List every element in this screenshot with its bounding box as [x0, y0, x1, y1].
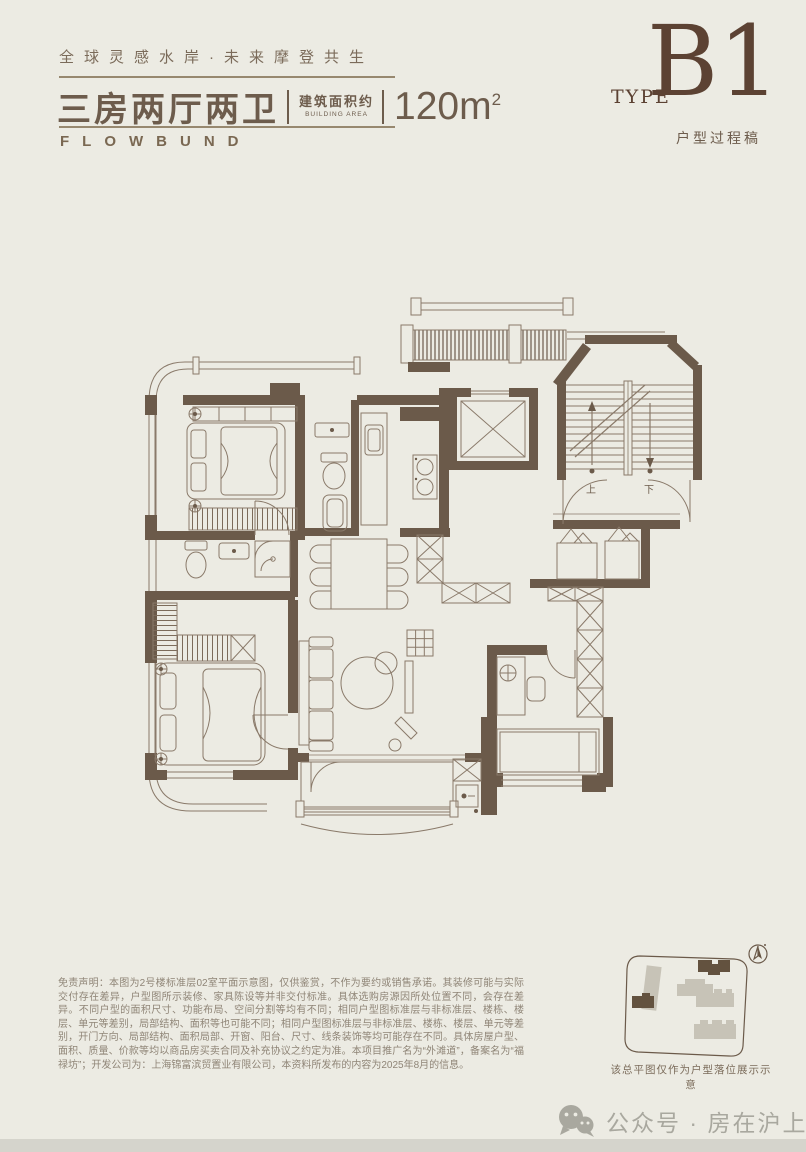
header-rule-top: [59, 76, 395, 78]
tv-console-icon: [405, 661, 413, 713]
bed-icon: [497, 729, 599, 775]
elevator-icon: [461, 391, 525, 457]
stair-down-label: 下: [644, 485, 654, 496]
tv-icon: [395, 717, 417, 739]
bed-icon: [187, 423, 285, 499]
louver-strip: [401, 298, 665, 363]
foyer-cabinets: [557, 527, 639, 579]
stool-icon: [389, 739, 401, 751]
area-value: 120m2: [394, 85, 501, 129]
study-room: [497, 650, 599, 786]
type-note: 户型过程稿: [676, 128, 761, 148]
entry-doors: [553, 480, 690, 524]
rug-icon: [341, 657, 393, 709]
toilet-icon: [185, 541, 207, 578]
divider: [287, 90, 289, 124]
grid-table-icon: [407, 630, 433, 656]
toilet-icon: [321, 453, 347, 489]
bedroom-master: [149, 603, 288, 778]
watermark: 公众号 · 房在沪上: [556, 1104, 806, 1138]
shower-icon: [255, 541, 290, 577]
window-lines: [501, 780, 582, 786]
desk-chair-icon: [527, 677, 545, 701]
stove-icon: [413, 455, 437, 499]
tagline: 全球灵感水岸·未来摩登共生: [59, 46, 374, 67]
bathroom-middle: [185, 541, 290, 578]
site-map: [610, 936, 780, 1066]
wardrobe-hatch: [231, 535, 603, 781]
kitchen: [361, 413, 437, 525]
wechat-icon: [556, 1104, 598, 1138]
brand-logo: FLOWBUND: [60, 133, 251, 150]
wardrobe-hatch: [189, 508, 297, 530]
bathroom-top: [315, 423, 349, 531]
living-room: [299, 630, 465, 792]
site-building: [641, 965, 736, 1039]
door-arc: [311, 762, 341, 792]
poster-page: 全球灵感水岸·未来摩登共生 三房两厅两卫 建筑面积约 BUILDING AREA…: [0, 0, 806, 1152]
footer-bar: [0, 1139, 806, 1152]
dining-table-icon: [331, 539, 387, 609]
side-table-icon: [375, 652, 397, 674]
bedroom-secondary: [149, 407, 297, 535]
watermark-text: 公众号 · 房在沪上: [606, 1104, 806, 1138]
bed-icon: [155, 663, 265, 765]
water-heater-icon: [456, 785, 478, 813]
staircase-icon: 上 下: [566, 381, 693, 496]
bay-window-top: [193, 357, 360, 374]
area-label: 建筑面积约 BUILDING AREA: [299, 95, 374, 117]
headline-row: 三房两厅两卫 建筑面积约 BUILDING AREA 120m2: [57, 82, 501, 131]
type-value: B1: [647, 8, 780, 117]
building-eave-outline: [149, 362, 267, 811]
wardrobe-hatch: [153, 603, 177, 659]
stair-up-label: 上: [586, 484, 596, 496]
header-rule-bottom: [59, 126, 395, 128]
wardrobe-hatch: [177, 635, 231, 661]
desk-icon: [497, 657, 545, 715]
chair-icon: [310, 545, 331, 609]
chair-icon: [387, 545, 408, 609]
sofa-icon: [299, 637, 333, 751]
divider: [382, 90, 384, 124]
drip-line: [301, 824, 453, 835]
dining-area: [310, 539, 408, 609]
site-map-caption: 该总平图仅作为户型落位展示示意: [606, 1062, 776, 1092]
floor-plan: 上 下: [105, 283, 705, 873]
door-arc: [547, 650, 575, 678]
page-title: 三房两厅两卫: [57, 82, 279, 131]
balcony: [296, 762, 478, 835]
disclaimer-text: 免责声明：本图为2号楼标准层02室平面示意图，仅供鉴赏，不作为要约或销售承诺。其…: [58, 977, 524, 1072]
